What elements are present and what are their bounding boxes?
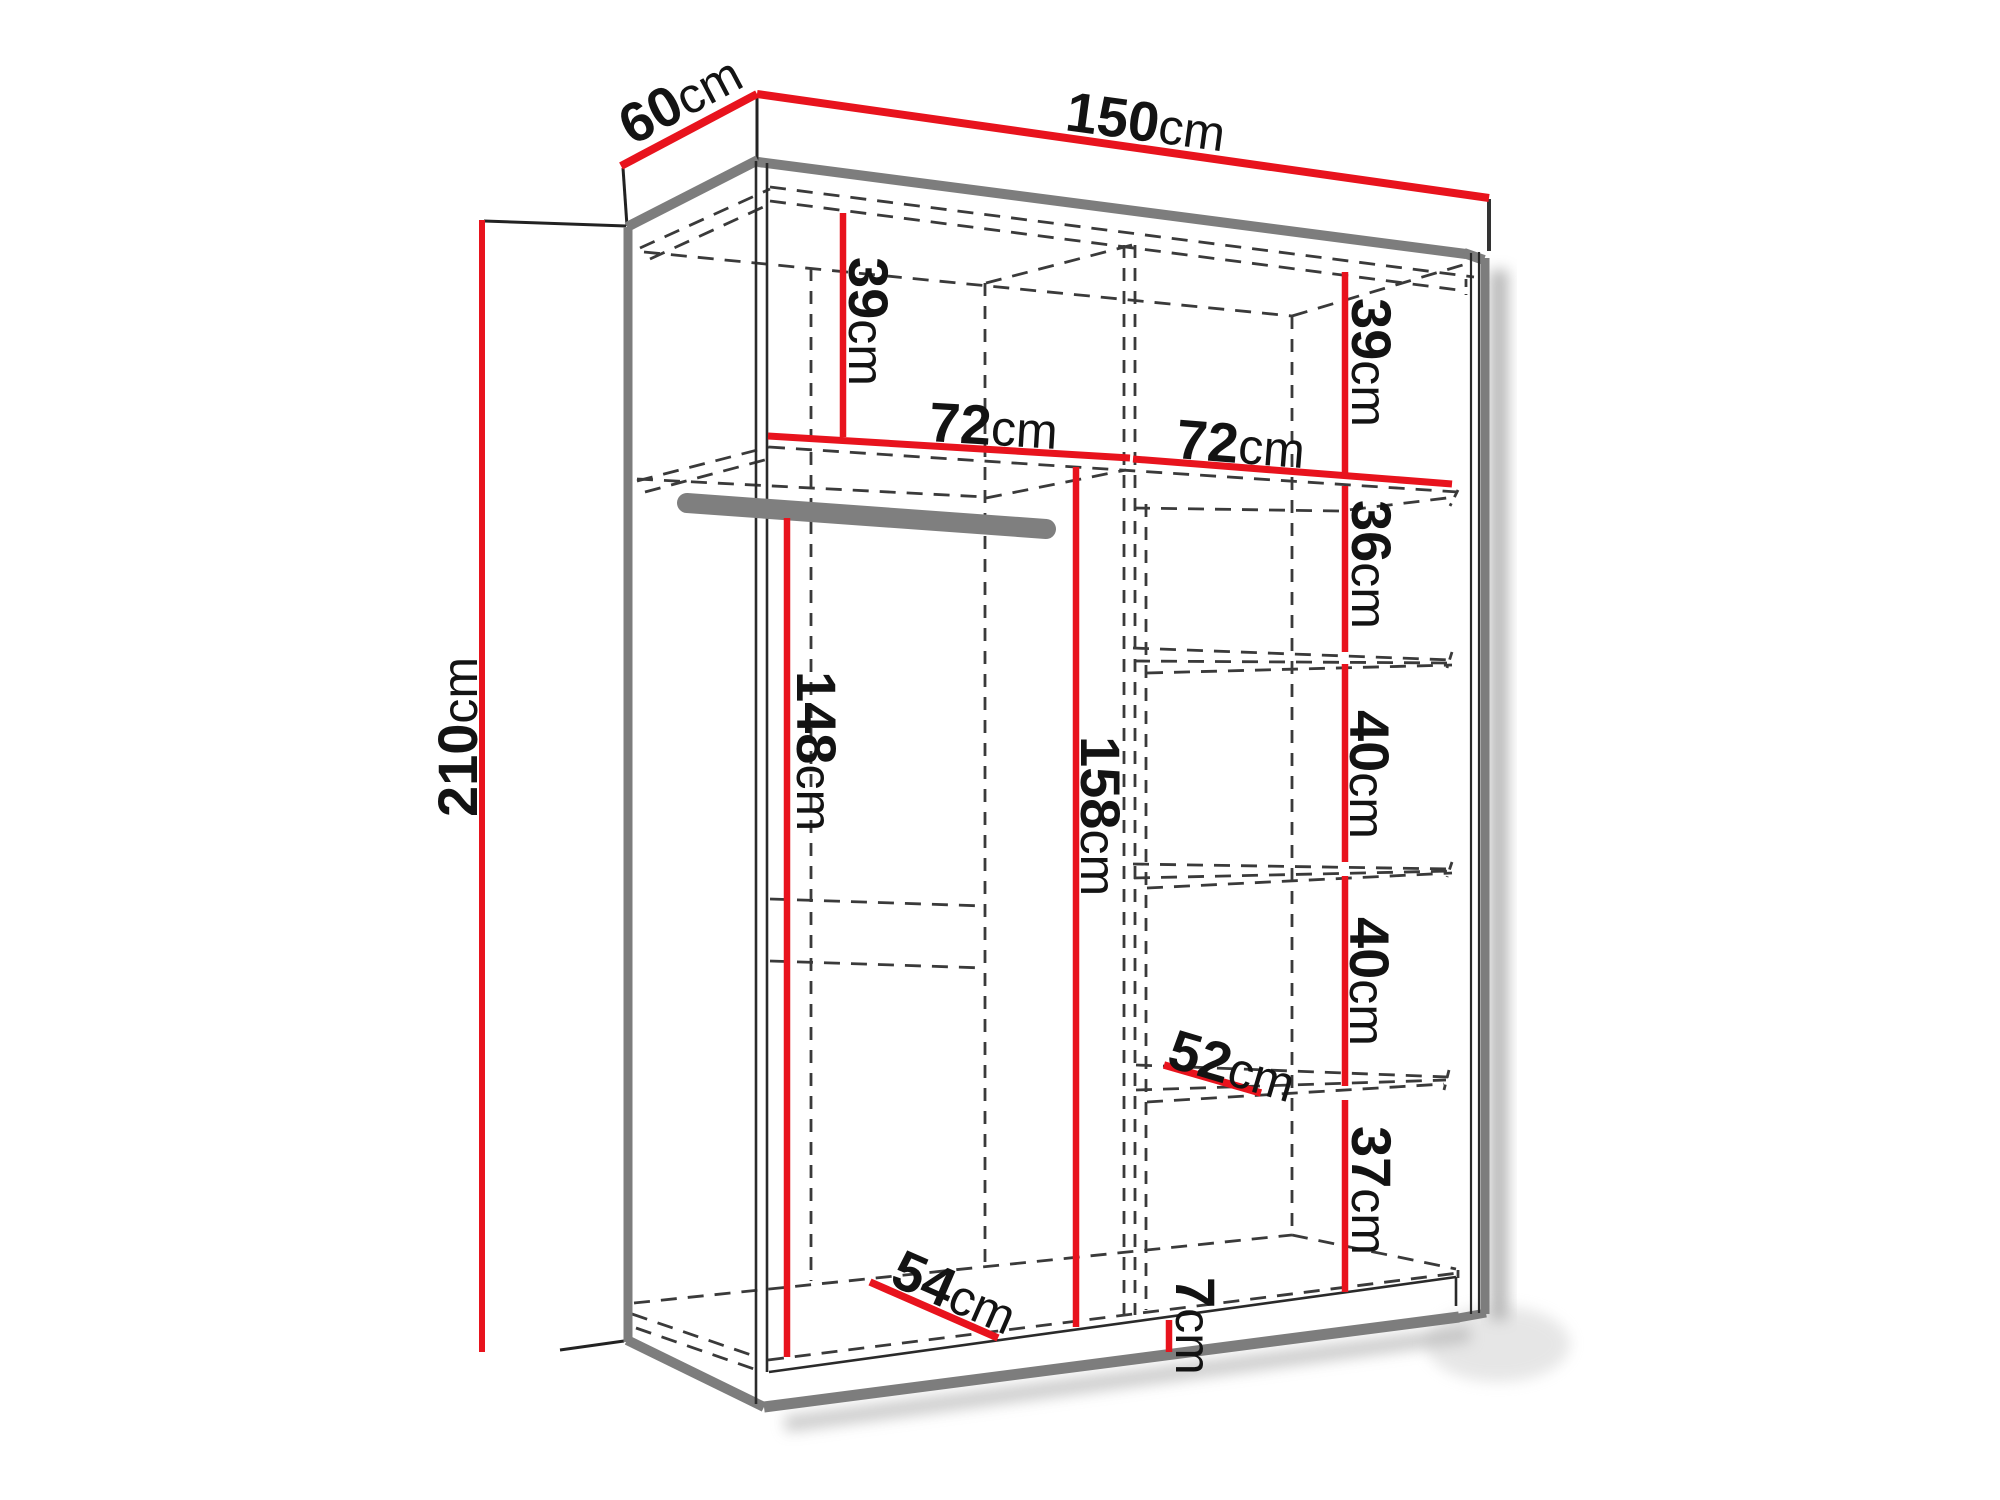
svg-text:36cm: 36cm (1340, 500, 1403, 629)
svg-text:37cm: 37cm (1340, 1126, 1403, 1255)
svg-text:148cm: 148cm (785, 671, 848, 831)
svg-text:158cm: 158cm (1069, 736, 1132, 896)
svg-text:40cm: 40cm (1338, 917, 1401, 1046)
svg-text:40cm: 40cm (1338, 710, 1401, 839)
svg-text:210cm: 210cm (426, 657, 489, 817)
svg-text:39cm: 39cm (1340, 298, 1403, 427)
svg-text:7cm: 7cm (1164, 1277, 1227, 1375)
svg-text:39cm: 39cm (837, 257, 900, 386)
